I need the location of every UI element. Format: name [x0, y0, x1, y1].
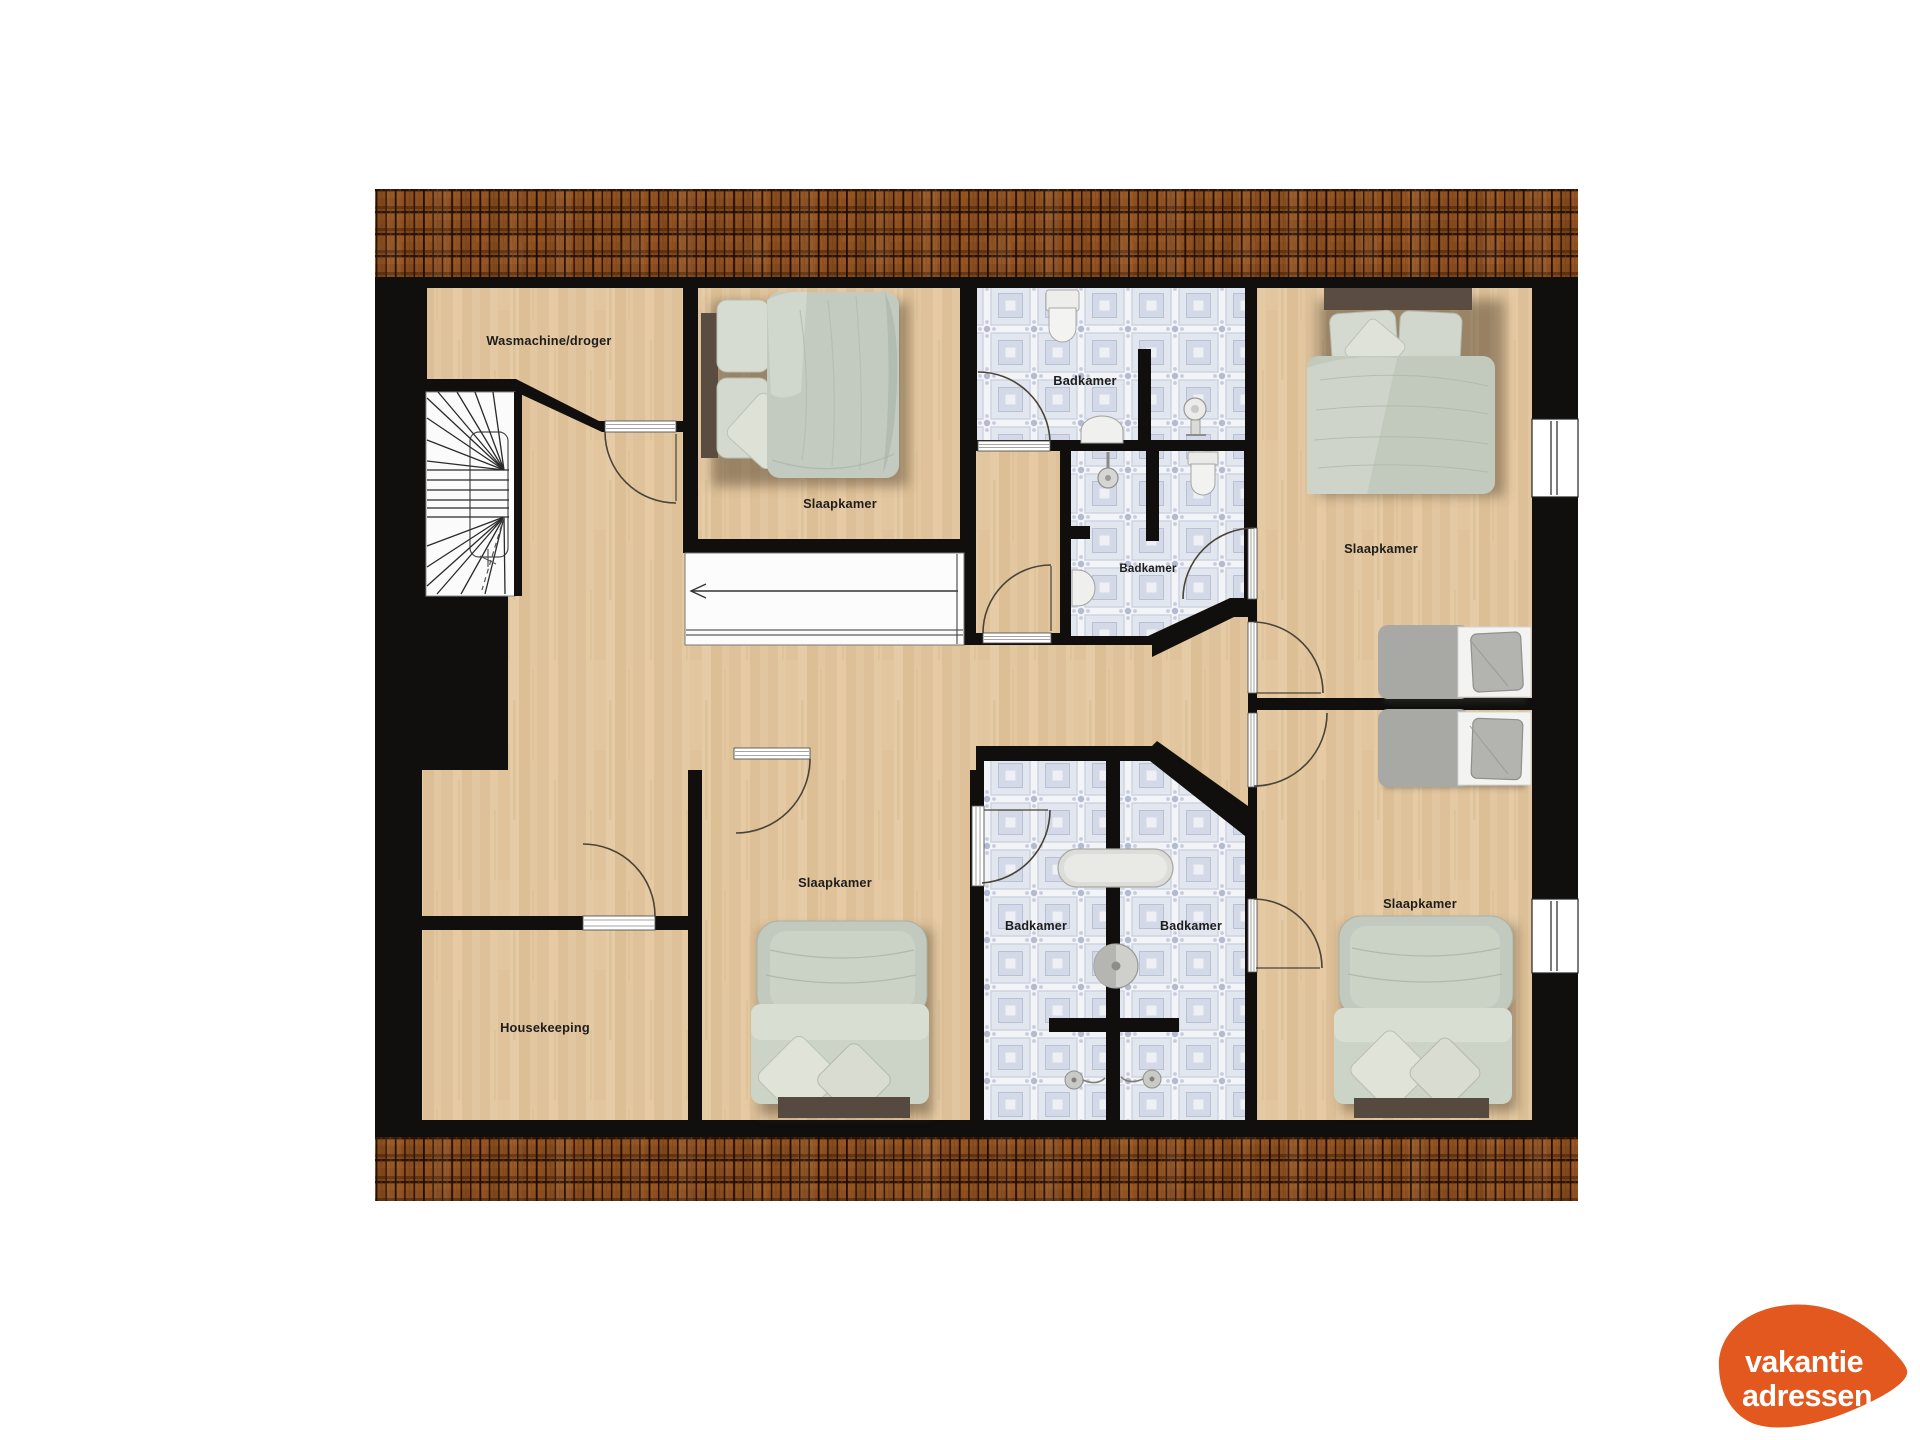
svg-text:Badkamer: Badkamer: [1119, 563, 1177, 575]
svg-text:Housekeeping: Housekeeping: [500, 1020, 590, 1035]
svg-text:Slaapkamer: Slaapkamer: [1344, 541, 1418, 556]
svg-text:Badkamer: Badkamer: [1053, 373, 1117, 388]
svg-text:Slaapkamer: Slaapkamer: [803, 496, 877, 511]
svg-text:adressen: adressen: [1742, 1379, 1872, 1413]
svg-text:Wasmachine/droger: Wasmachine/droger: [486, 333, 611, 348]
svg-text:Slaapkamer: Slaapkamer: [1383, 896, 1457, 911]
svg-text:vakantie: vakantie: [1745, 1345, 1863, 1379]
svg-text:Badkamer: Badkamer: [1005, 919, 1067, 933]
svg-text:Badkamer: Badkamer: [1160, 919, 1222, 933]
svg-text:Slaapkamer: Slaapkamer: [798, 875, 872, 890]
